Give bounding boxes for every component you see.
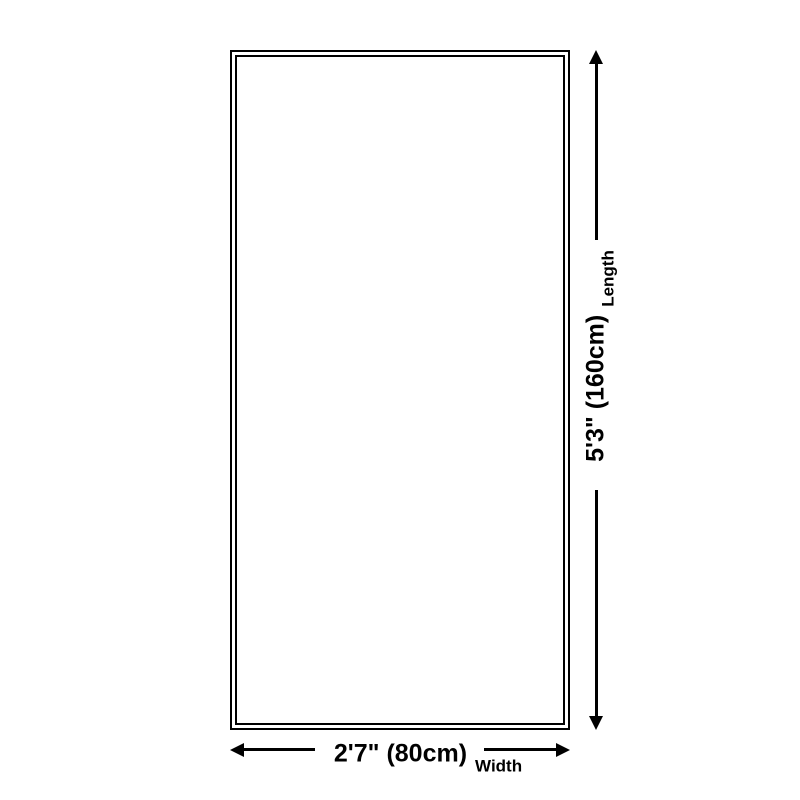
rug-inner-border xyxy=(235,55,565,725)
width-label: Width xyxy=(475,756,522,775)
length-dimension-text: 5'3" (160cm)Length xyxy=(582,250,610,462)
rug-outline xyxy=(230,50,570,730)
length-arrow-line-top xyxy=(595,62,598,240)
width-arrow-line-left xyxy=(242,748,315,751)
length-label: Length xyxy=(598,250,617,307)
arrow-down-icon xyxy=(589,716,603,730)
length-arrow-line-bottom xyxy=(595,490,598,718)
width-dimension-text: 2'7" (80cm)Width xyxy=(334,740,522,768)
length-value: 5'3" (160cm) xyxy=(581,315,609,462)
dimension-diagram: 5'3" (160cm)Length 2'7" (80cm)Width xyxy=(0,0,800,800)
width-value: 2'7" (80cm) xyxy=(334,739,467,767)
arrow-right-icon xyxy=(556,743,570,757)
